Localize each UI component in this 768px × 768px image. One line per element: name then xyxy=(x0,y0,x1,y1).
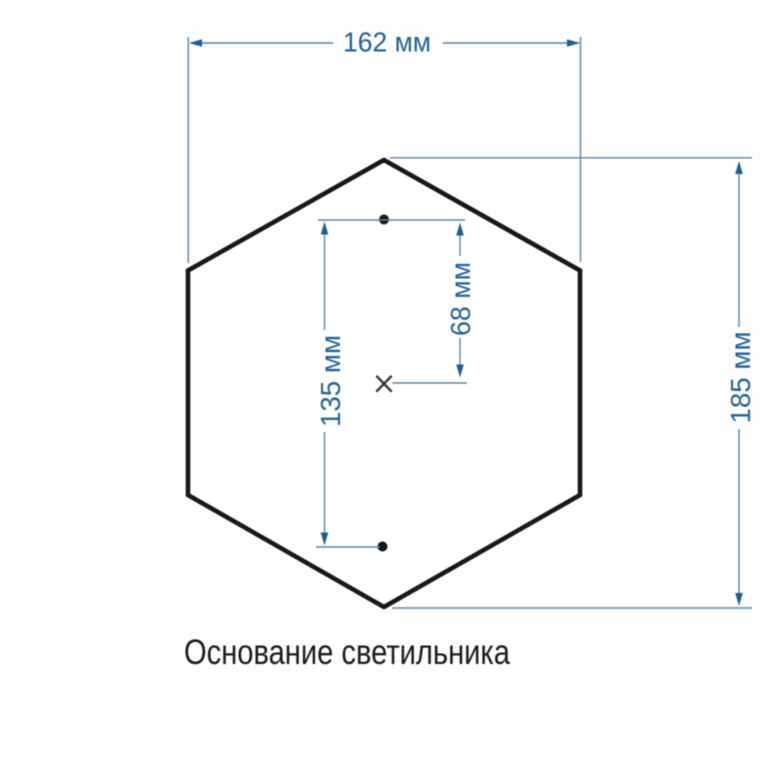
svg-text:135 мм: 135 мм xyxy=(315,335,346,427)
svg-text:68 мм: 68 мм xyxy=(445,262,476,336)
svg-text:185 мм: 185 мм xyxy=(725,332,756,424)
svg-text:162 мм: 162 мм xyxy=(343,27,431,58)
svg-text:Основание светильника: Основание светильника xyxy=(184,633,510,672)
